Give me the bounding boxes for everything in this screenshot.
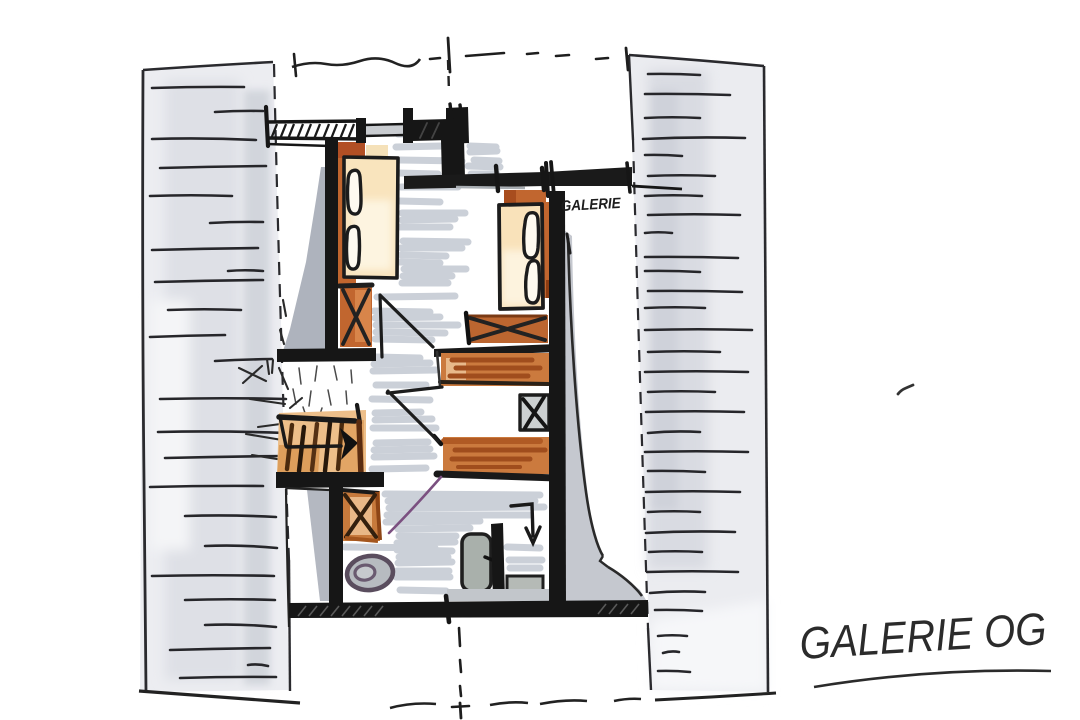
svg-text:GALERIE: GALERIE	[560, 195, 622, 215]
svg-text:GALERIE OG: GALERIE OG	[798, 603, 1048, 669]
